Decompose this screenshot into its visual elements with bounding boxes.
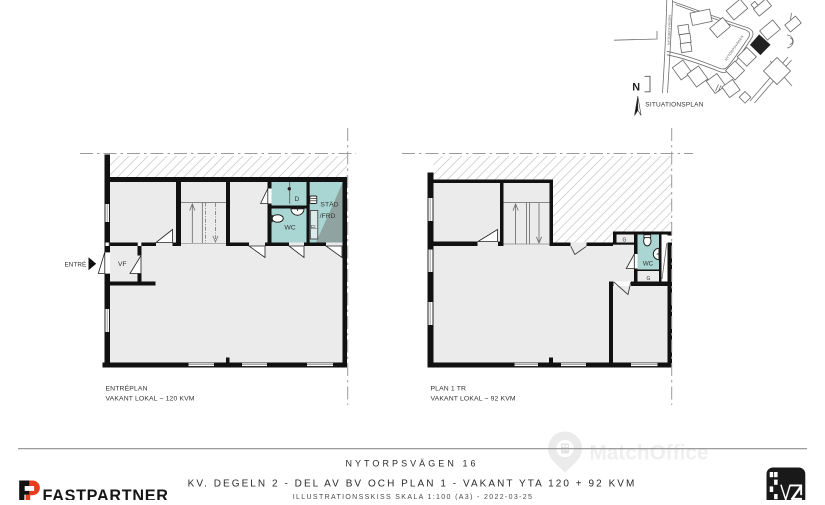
svg-text:KV. DEGELN 2 - DEL AV BV OCH P: KV. DEGELN 2 - DEL AV BV OCH PLAN 1 - VA… (188, 479, 637, 490)
svg-text:/FRD: /FRD (320, 213, 336, 220)
svg-text:N: N (632, 82, 640, 94)
svg-text:ILLUSTRATIONSSKISS SKALA 1:100: ILLUSTRATIONSSKISS SKALA 1:100 (A3) - 20… (293, 494, 534, 500)
svg-text:VAKANT LOKAL ~ 92 KVM: VAKANT LOKAL ~ 92 KVM (431, 395, 516, 402)
svg-text:MatchOffice: MatchOffice (590, 442, 709, 465)
svg-text:NYTORPSVÄGEN 16: NYTORPSVÄGEN 16 (345, 459, 478, 469)
svg-text:FASTPARTNER: FASTPARTNER (43, 487, 169, 500)
svg-text:PLAN 1 TR: PLAN 1 TR (431, 385, 467, 392)
svg-text:WC: WC (643, 260, 654, 267)
svg-text:WC: WC (284, 224, 295, 231)
svg-text:VAKANT LOKAL ~ 120 KVM: VAKANT LOKAL ~ 120 KVM (106, 395, 195, 402)
svg-text:VF: VF (118, 261, 127, 268)
svg-text:STÄD: STÄD (320, 201, 338, 209)
svg-text:G: G (623, 237, 627, 243)
svg-text:EL: EL (311, 225, 317, 231)
svg-text:SITUATIONSPLAN: SITUATIONSPLAN (645, 102, 703, 109)
svg-text:D: D (295, 196, 300, 203)
svg-text:ENTRÉ: ENTRÉ (65, 259, 87, 268)
svg-text:ENTRÉPLAN: ENTRÉPLAN (106, 383, 148, 392)
svg-text:G: G (647, 276, 651, 282)
